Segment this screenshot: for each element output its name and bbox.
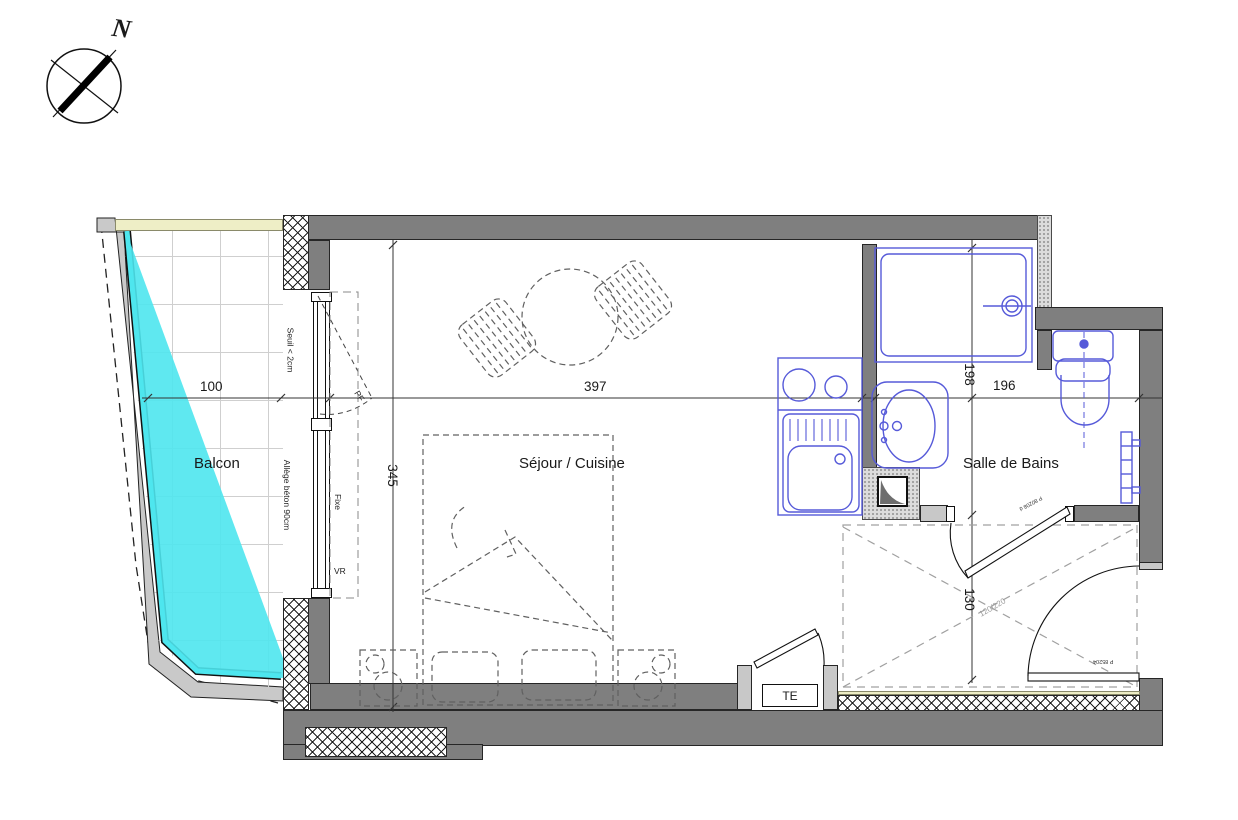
duct-symbol-layer (0, 0, 1238, 820)
note-fixed-pane: Fixe (333, 494, 343, 510)
room-label-salle-de-bains: Salle de Bains (963, 455, 1059, 472)
duct-triangle (880, 480, 905, 504)
dim-hall-depth: 130 (962, 588, 977, 611)
entry-door-ref: P 85204 (1093, 658, 1113, 664)
dim-balcony-width: 100 (200, 379, 223, 394)
note-sill: Allège béton 90cm (282, 460, 292, 530)
electrical-panel-label: TE (782, 689, 797, 703)
room-label-sejour-cuisine: Séjour / Cuisine (519, 455, 625, 472)
compass-north-label: N (110, 13, 133, 45)
dim-sejour-width: 397 (584, 379, 607, 394)
note-roller-shutter: VR (334, 566, 346, 576)
electrical-panel: TE (762, 684, 818, 707)
dim-bath-upper: 198 (962, 363, 977, 386)
dim-sejour-depth: 345 (385, 464, 400, 487)
dim-bath-width: 196 (993, 378, 1016, 393)
floor-plan: N Balcon Séjour / Cuisine Salle de Bains… (0, 0, 1238, 820)
room-label-balcon: Balcon (194, 455, 240, 472)
note-threshold: Seuil < 2cm (285, 328, 295, 373)
